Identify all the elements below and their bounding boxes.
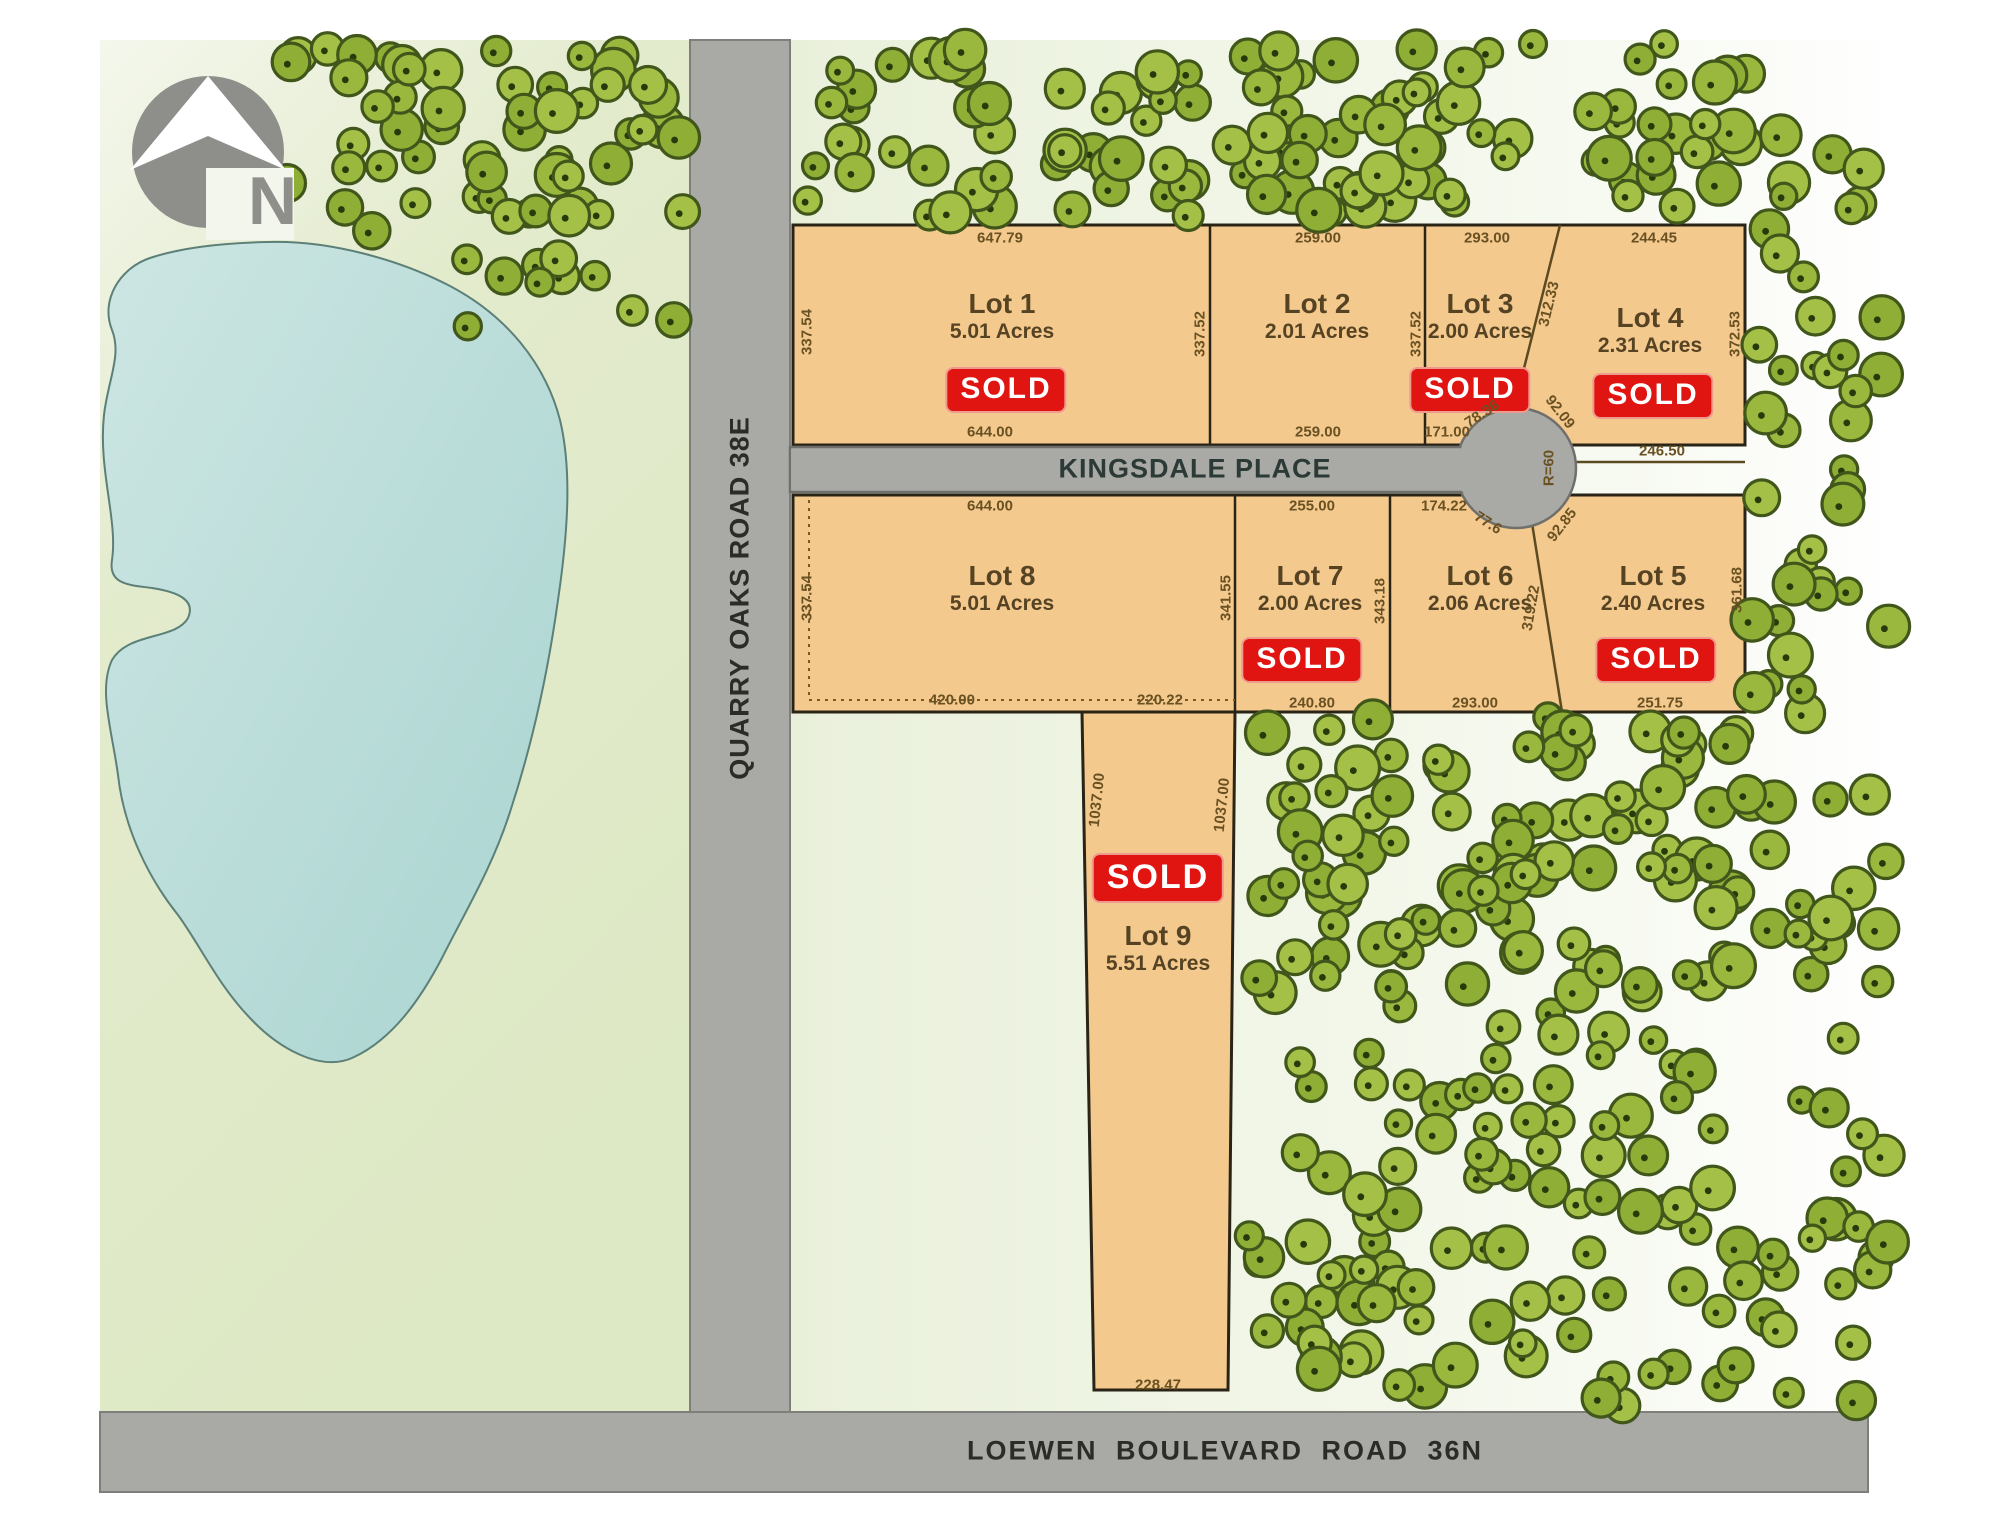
lot-label: Lot 22.01 Acres [1265,288,1369,344]
tree-icon [1625,44,1655,74]
tree-icon [1691,1166,1735,1210]
tree-icon [1424,745,1453,774]
tree-icon [1582,1379,1620,1417]
tree-icon [968,83,1010,125]
dimension-label: 259.00 [1295,424,1341,441]
tree-icon [1173,201,1203,231]
tree-icon [1789,262,1819,292]
dimension-label: 244.45 [1631,230,1677,247]
tree-icon [1344,1173,1387,1216]
tree-icon [1314,39,1357,82]
sold-badge: SOLD [945,367,1066,413]
tree-icon [1547,1277,1584,1314]
tree-icon [1810,1089,1848,1127]
tree-icon [944,29,985,70]
dimension-label: 171.00 [1424,424,1470,441]
tree-icon [1297,1347,1340,1390]
lot-title: Lot 7 [1258,560,1362,592]
tree-icon [453,245,482,274]
tree-icon [331,60,367,96]
tree-icon [1318,1262,1345,1289]
tree-icon [880,137,910,167]
tree-icon [1639,1359,1668,1388]
tree-icon [1049,135,1081,167]
tree-icon [1282,142,1317,177]
tree-icon [1471,1300,1514,1343]
tree-icon [1774,1378,1803,1407]
tree-icon [535,90,578,133]
lot-acres: 5.51 Acres [1106,952,1210,976]
tree-icon [1468,120,1495,147]
tree-icon [1606,782,1635,811]
tree-icon [1433,1343,1477,1387]
tree-icon [1761,115,1802,156]
lot-title: Lot 2 [1265,288,1369,320]
tree-icon [1638,853,1666,881]
lot-title: Lot 3 [1428,288,1532,320]
svg-text:N: N [248,163,297,239]
lot-title: Lot 6 [1428,560,1532,592]
tree-icon [1788,676,1815,703]
tree-icon [1512,1103,1546,1137]
tree-icon [1136,51,1178,93]
dimension-label: R=60 [1541,450,1558,486]
tree-icon [1660,189,1694,223]
tree-icon [1269,869,1299,899]
tree-icon [1558,928,1590,960]
sold-badge: SOLD [1595,637,1716,683]
dimension-label: 337.54 [799,309,816,355]
tree-icon [1695,887,1737,929]
tree-icon [1435,179,1466,210]
tree-icon [1734,673,1774,713]
lot-label: Lot 85.01 Acres [950,560,1054,616]
tree-icon [1587,1042,1614,1069]
tree-icon [1785,920,1812,947]
tree-icon [1320,911,1348,939]
tree-icon [1572,846,1616,890]
tree-icon [1797,297,1835,335]
tree-icon [1587,136,1631,180]
lot-title: Lot 5 [1601,560,1705,592]
tree-icon [909,146,948,185]
tree-icon [486,258,522,294]
lot-acres: 2.01 Acres [1265,320,1369,344]
tree-icon [1668,717,1699,748]
tree-icon [1293,841,1322,870]
lot-title: Lot 9 [1106,920,1210,952]
dimension-label: 337.52 [1192,311,1209,357]
tree-icon [836,154,873,191]
tree-icon [1742,327,1777,362]
dimension-label: 293.00 [1464,230,1510,247]
tree-icon [1809,896,1853,940]
road-label-kingsdale-place: KINGSDALE PLACE [1058,454,1331,485]
tree-icon [272,43,310,81]
tree-icon [1613,181,1643,211]
tree-icon [876,48,909,81]
tree-icon [1828,1023,1858,1053]
tree-icon [1376,971,1407,1002]
sold-badge: SOLD [1241,637,1362,683]
tree-icon [1670,1268,1707,1305]
sold-badge: SOLD [1409,367,1530,413]
tree-icon [1799,1225,1825,1251]
tree-icon [1213,126,1251,164]
tree-icon [553,161,583,191]
tree-icon [1351,1256,1378,1283]
tree-icon [1629,1136,1668,1175]
tree-icon [1712,944,1756,988]
tree-icon [591,68,624,101]
dimension-label: 343.18 [1372,578,1389,624]
dimension-label: 246.50 [1639,443,1685,460]
tree-icon [1770,356,1798,384]
tree-icon [1637,140,1673,176]
tree-icon [1243,70,1278,105]
tree-icon [1355,1068,1387,1100]
tree-icon [1681,136,1713,168]
tree-icon [1248,175,1286,213]
tree-icon [520,195,552,227]
tree-icon [1484,1226,1527,1269]
tree-icon [1235,1222,1263,1250]
road-label-loewen-boulevard: LOEWEN BOULEVARD ROAD 36N [967,1436,1483,1467]
tree-icon [1446,963,1488,1005]
tree-icon [1260,32,1298,70]
tree-icon [1417,1114,1456,1153]
tree-icon [1487,1011,1520,1044]
tree-icon [1175,85,1211,121]
dimension-label: 228.47 [1135,1377,1181,1394]
dimension-label: 337.54 [799,575,816,621]
dimension-label: 644.00 [967,498,1013,515]
tree-icon [1640,1027,1666,1053]
tree-icon [1403,79,1430,106]
tree-icon [666,195,700,229]
tree-icon [1744,480,1780,516]
tree-icon [1509,1330,1536,1357]
lot-label: Lot 42.31 Acres [1598,302,1702,358]
lot-label: Lot 15.01 Acres [950,288,1054,344]
tree-icon [1850,775,1889,814]
tree-icon [1272,1283,1306,1317]
tree-icon [1282,1135,1318,1171]
tree-icon [1365,104,1406,145]
tree-icon [1751,831,1788,868]
tree-icon [794,187,821,214]
tree-icon [1657,70,1686,99]
tree-icon [526,268,554,296]
tree-icon [1860,296,1903,339]
dimension-label: 174.22 [1421,498,1467,515]
dimension-label: 240.80 [1289,695,1335,712]
tree-icon [1725,1262,1763,1300]
tree-icon [1694,61,1737,104]
tree-icon [1623,968,1658,1003]
tree-icon [1641,766,1684,809]
tree-icon [1397,30,1436,69]
tree-icon [1728,776,1766,814]
tree-icon [1355,1039,1383,1067]
tree-icon [1251,1315,1283,1347]
tree-icon [1055,192,1090,227]
tree-icon [1638,108,1671,141]
tree-icon [1699,1115,1727,1143]
lot-label: Lot 32.00 Acres [1428,288,1532,344]
tree-icon [1558,1318,1591,1351]
tree-icon [1384,1370,1415,1401]
dimension-label: 220.22 [1137,692,1183,709]
tree-icon [1560,715,1591,746]
tree-icon [1574,1237,1605,1268]
tree-icon [1814,783,1847,816]
tree-icon [1673,961,1701,989]
lot-acres: 5.01 Acres [950,320,1054,344]
tree-icon [1835,578,1861,604]
tree-icon [1585,1180,1620,1215]
tree-icon [1829,340,1859,370]
tree-icon [1718,1348,1753,1383]
tree-icon [1353,700,1392,739]
tree-icon [1840,375,1871,406]
dimension-label: 644.00 [967,424,1013,441]
tree-icon [1358,1285,1395,1322]
tree-icon [1323,815,1363,855]
lot-label: Lot 95.51 Acres [1106,920,1210,976]
tree-icon [816,87,846,117]
tree-icon [1474,1113,1501,1140]
lot-acres: 2.06 Acres [1428,592,1532,616]
tree-icon [1844,149,1883,188]
tree-icon [1604,815,1633,844]
tree-icon [1832,1157,1861,1186]
tree-icon [1691,110,1720,139]
lot-title: Lot 4 [1598,302,1702,334]
tree-icon [1385,1110,1411,1136]
tree-icon [1822,483,1864,525]
lot-title: Lot 8 [950,560,1054,592]
tree-icon [1769,633,1813,677]
tree-icon [1494,1075,1522,1103]
tree-icon [1663,854,1691,882]
road-label-quarry-oaks: QUARRY OAKS ROAD 38E [725,416,756,780]
tree-icon [1703,1295,1735,1327]
tree-icon [630,67,667,104]
tree-icon [1773,563,1815,605]
lot-label: Lot 62.06 Acres [1428,560,1532,616]
tree-icon [581,262,609,290]
dimension-label: 420.00 [929,692,975,709]
tree-icon [1280,783,1309,812]
tree-icon [1248,113,1287,152]
lot-title: Lot 1 [950,288,1054,320]
tree-icon [1445,48,1484,87]
dimension-label: 372.53 [1727,311,1744,357]
tree-icon [1530,1168,1569,1207]
tree-icon [467,152,507,192]
dimension-label: 337.52 [1408,311,1425,357]
sold-badge: SOLD [1592,373,1713,419]
tree-icon [1045,69,1084,108]
tree-icon [1593,1278,1625,1310]
tree-icon [1752,909,1790,947]
tree-icon [1697,162,1740,205]
tree-icon [657,303,691,337]
tree-icon [1539,1015,1578,1054]
tree-icon [482,36,511,65]
tree-icon [1394,1070,1424,1100]
tree-icon [1315,715,1344,744]
tree-icon [1586,951,1622,987]
tree-icon [1398,1270,1434,1306]
tree-icon [1837,1326,1870,1359]
tree-icon [394,53,426,85]
tree-icon [1468,843,1497,872]
tree-icon [1286,1220,1329,1263]
tree-icon [1466,1138,1498,1170]
tree-icon [591,143,632,184]
lot-acres: 2.40 Acres [1601,592,1705,616]
tree-icon [803,153,829,179]
tree-icon [1511,1282,1549,1320]
tree-icon [1511,860,1540,889]
tree-icon [1469,876,1498,905]
tree-icon [1405,1306,1433,1334]
sold-badge: SOLD [1092,853,1224,903]
tree-icon [1836,193,1867,224]
tree-icon [549,195,590,236]
tree-icon [981,161,1011,191]
tree-icon [1758,1239,1788,1269]
tree-icon [1771,183,1797,209]
dimension-label: 361.68 [1729,567,1746,613]
tree-icon [401,189,430,218]
tree-icon [1694,845,1731,882]
dimension-label: 259.00 [1295,230,1341,247]
dimension-label: 647.79 [977,230,1023,247]
tree-icon [1439,910,1475,946]
tree-icon [1380,827,1408,855]
tree-icon [1492,143,1519,170]
tree-icon [454,313,481,340]
tree-icon [1745,392,1787,434]
tree-icon [1372,776,1413,817]
tree-icon [333,152,365,184]
tree-icon [1412,907,1439,934]
lot-acres: 2.31 Acres [1598,334,1702,358]
tree-icon [827,57,854,84]
tree-icon [1278,940,1313,975]
lot-acres: 2.00 Acres [1428,320,1532,344]
dimension-label: 293.00 [1452,695,1498,712]
tree-icon [1311,961,1340,990]
tree-icon [1242,961,1277,996]
tree-icon [1534,1066,1572,1104]
tree-icon [1380,1148,1416,1184]
tree-icon [1514,732,1544,762]
dimension-label: 255.00 [1289,498,1335,515]
tree-icon [1288,748,1321,781]
lot-acres: 5.01 Acres [950,592,1054,616]
tree-icon [1433,793,1470,830]
tree-icon [1151,147,1187,183]
tree-icon [628,115,657,144]
tree-icon [658,117,699,158]
tree-icon [1858,909,1898,949]
tree-icon [930,192,971,233]
dimension-label: 251.75 [1637,695,1683,712]
tree-icon [1575,93,1612,130]
tree-icon [1297,188,1341,232]
tree-icon [1482,1044,1510,1072]
lot-label: Lot 72.00 Acres [1258,560,1362,616]
tree-icon [1092,92,1124,124]
tree-icon [1762,1312,1797,1347]
tree-icon [1431,1228,1471,1268]
site-plan-map: N KINGSDALE PLACE QUARRY OAKS ROAD 38E L… [0,0,2000,1532]
tree-icon [1437,82,1479,124]
dimension-label: 341.55 [1218,575,1235,621]
tree-icon [1316,776,1347,807]
tree-icon [568,42,595,69]
lot-acres: 2.00 Acres [1258,592,1362,616]
lot-label: Lot 52.40 Acres [1601,560,1705,616]
tree-icon [1662,1082,1693,1113]
tree-icon [1619,1189,1663,1233]
tree-icon [1520,31,1547,58]
tree-icon [1869,844,1903,878]
tree-icon [1863,967,1893,997]
tree-icon [1798,536,1825,563]
tree-icon [1464,1074,1492,1102]
tree-icon [1328,864,1367,903]
tree-icon [362,91,393,122]
tree-icon [422,87,464,129]
tree-icon [1246,711,1289,754]
tree-icon [1867,1221,1909,1263]
tree-icon [618,296,648,326]
tree-icon [1100,137,1144,181]
tree-icon [1591,1112,1619,1140]
tree-icon [1710,724,1749,763]
tree-icon [1848,1119,1878,1149]
tree-icon [1286,1048,1315,1077]
tree-icon [367,151,397,181]
tree-icon [1837,1382,1875,1420]
tree-icon [327,190,362,225]
tree-icon [1826,1269,1856,1299]
tree-icon [1868,605,1910,647]
tree-icon [1360,152,1403,195]
tree-icon [1504,932,1543,971]
